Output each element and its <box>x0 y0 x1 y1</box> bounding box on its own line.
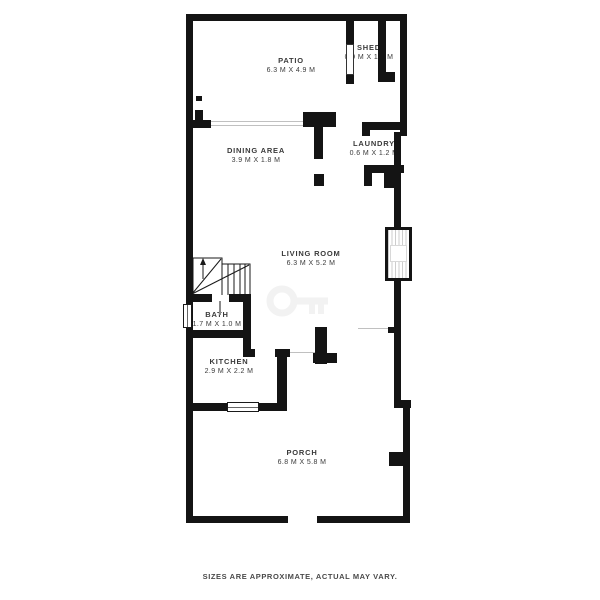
wall <box>362 122 370 136</box>
wall <box>364 165 372 186</box>
door-leaf <box>346 44 354 75</box>
wall <box>400 14 407 136</box>
room-dimensions: 6.3 M X 4.9 M <box>267 67 316 75</box>
wall <box>275 349 290 357</box>
wall <box>186 330 251 338</box>
room-label-kitchen: KITCHEN 2.9 M X 2.2 M <box>205 358 254 376</box>
room-label-laundry: LAUNDRY 0.6 M X 1.2 M <box>350 140 399 158</box>
wall <box>186 403 227 411</box>
room-name: KITCHEN <box>205 358 254 366</box>
window <box>183 304 192 328</box>
fireplace-insert <box>390 245 407 262</box>
opening-line <box>288 352 315 353</box>
room-name: PATIO <box>267 57 316 65</box>
wall <box>388 327 394 333</box>
wall <box>186 14 407 21</box>
window <box>227 402 259 412</box>
wall <box>186 120 211 128</box>
floor-plan: PATIO 6.3 M X 4.9 M SHED 0.9 M X 1.8 M D… <box>0 0 600 600</box>
room-label-patio: PATIO 6.3 M X 4.9 M <box>267 57 316 75</box>
room-dimensions: 1.7 M X 1.0 M <box>193 321 242 329</box>
fireplace-icon <box>385 227 412 281</box>
staircase <box>189 255 251 295</box>
wall <box>196 96 202 101</box>
sliding-door-symbol <box>211 121 303 126</box>
wall <box>186 516 288 523</box>
wall <box>243 349 255 357</box>
wall <box>317 516 410 523</box>
room-dimensions: 3.9 M X 1.8 M <box>227 157 285 165</box>
wall <box>186 14 193 523</box>
door-leaf <box>219 301 221 315</box>
wall <box>277 349 287 411</box>
room-name: PORCH <box>278 449 327 457</box>
room-label-bath: BATH 1.7 M X 1.0 M <box>193 311 242 329</box>
wall <box>313 353 337 363</box>
wall <box>243 294 251 357</box>
opening-line <box>358 328 390 329</box>
room-label-dining-area: DINING AREA 3.9 M X 1.8 M <box>227 147 285 165</box>
wall <box>259 403 287 411</box>
wall <box>314 126 323 159</box>
room-dimensions: 0.6 M X 1.2 M <box>350 150 399 158</box>
key-watermark-icon <box>262 281 340 321</box>
wall <box>389 452 410 466</box>
wall <box>346 74 354 84</box>
wall <box>378 21 386 74</box>
room-label-living-room: LIVING ROOM 6.3 M X 5.2 M <box>281 250 340 268</box>
room-name: DINING AREA <box>227 147 285 155</box>
room-name: BATH <box>193 311 242 319</box>
wall <box>384 173 396 188</box>
wall <box>186 294 212 302</box>
room-dimensions: 6.8 M X 5.8 M <box>278 459 327 467</box>
room-dimensions: 2.9 M X 2.2 M <box>205 368 254 376</box>
wall <box>394 279 401 402</box>
wall <box>303 112 336 127</box>
stair-direction-arrow <box>200 258 206 265</box>
wall <box>346 21 354 45</box>
wall <box>314 174 324 186</box>
room-name: LAUNDRY <box>350 140 399 148</box>
room-name: LIVING ROOM <box>281 250 340 258</box>
disclaimer-text: SIZES ARE APPROXIMATE, ACTUAL MAY VARY. <box>0 572 600 581</box>
wall <box>378 72 395 82</box>
room-label-porch: PORCH 6.8 M X 5.8 M <box>278 449 327 467</box>
room-dimensions: 6.3 M X 5.2 M <box>281 260 340 268</box>
